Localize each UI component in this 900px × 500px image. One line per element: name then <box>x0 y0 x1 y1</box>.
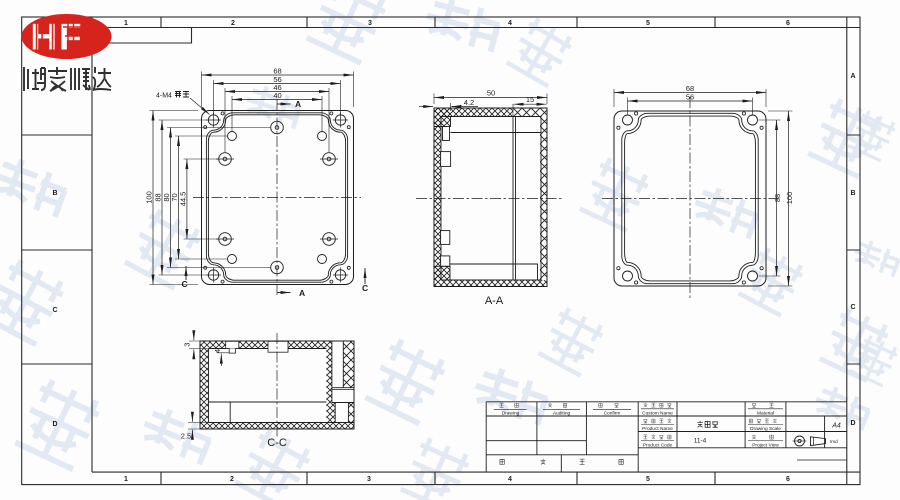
svg-text:Confirm: Confirm <box>604 411 621 417</box>
svg-text:Drawing: Drawing <box>502 411 520 417</box>
svg-text:11-4: 11-4 <box>694 438 707 445</box>
svg-text:B: B <box>850 190 855 197</box>
svg-text:Project View: Project View <box>752 442 779 448</box>
svg-text:2.5: 2.5 <box>181 432 191 441</box>
svg-text:Imd: Imd <box>830 439 838 444</box>
svg-text:C-C: C-C <box>267 437 287 449</box>
svg-text:6: 6 <box>786 476 790 483</box>
svg-text:5: 5 <box>646 20 650 27</box>
svg-text:4-M4: 4-M4 <box>156 93 172 100</box>
svg-text:Product Code: Product Code <box>643 442 673 448</box>
svg-text:D: D <box>52 421 57 428</box>
svg-text:44.5: 44.5 <box>178 192 187 207</box>
svg-text:D: D <box>850 420 855 427</box>
svg-text:Auditing: Auditing <box>553 411 571 417</box>
svg-text:3: 3 <box>367 476 371 483</box>
svg-text:C: C <box>850 304 855 311</box>
svg-text:3: 3 <box>368 20 372 27</box>
svg-text:4.2: 4.2 <box>464 98 474 107</box>
svg-text:2: 2 <box>231 20 235 27</box>
svg-text:A: A <box>850 73 855 80</box>
svg-text:4: 4 <box>508 20 512 27</box>
svg-text:1: 1 <box>124 476 128 483</box>
svg-text:C: C <box>182 279 188 289</box>
svg-text:100: 100 <box>785 192 794 205</box>
svg-text:B: B <box>52 190 57 197</box>
svg-text:100: 100 <box>145 191 154 204</box>
svg-text:Material: Material <box>757 410 774 416</box>
svg-text:Custom Name: Custom Name <box>642 410 673 416</box>
svg-text:A: A <box>299 288 305 298</box>
svg-text:4: 4 <box>213 349 222 353</box>
svg-text:A: A <box>295 99 301 109</box>
svg-text:3: 3 <box>182 343 191 347</box>
svg-text:5: 5 <box>646 476 650 483</box>
svg-text:40: 40 <box>273 91 281 100</box>
svg-text:Drawing Scale: Drawing Scale <box>750 426 781 432</box>
svg-text:A-A: A-A <box>485 295 504 307</box>
svg-text:56: 56 <box>686 93 694 102</box>
svg-text:15: 15 <box>526 95 534 104</box>
svg-text:HF: HF <box>30 17 83 58</box>
svg-text:4: 4 <box>508 476 512 483</box>
svg-text:Product Name: Product Name <box>642 426 673 432</box>
svg-text:C: C <box>52 307 57 314</box>
svg-text:1: 1 <box>124 20 128 27</box>
svg-text:A4: A4 <box>831 423 841 430</box>
svg-text:88: 88 <box>773 194 782 202</box>
svg-text:2: 2 <box>230 476 234 483</box>
svg-text:50: 50 <box>487 89 495 98</box>
svg-text:6: 6 <box>786 20 790 27</box>
svg-text:C: C <box>362 283 368 293</box>
